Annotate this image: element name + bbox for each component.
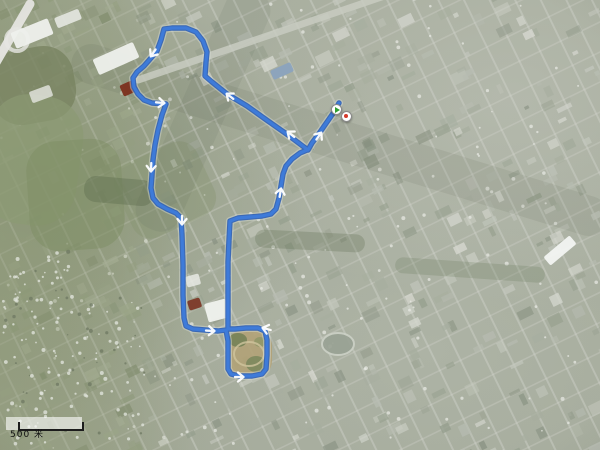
end-dot-icon (344, 114, 348, 118)
scale-bar: 500 米 (6, 416, 96, 446)
stadium (322, 333, 354, 355)
map-canvas[interactable]: 500 米 (0, 0, 600, 450)
route-start-marker[interactable] (331, 104, 342, 115)
scale-bar-label: 500 米 (10, 430, 44, 440)
play-icon (335, 107, 340, 113)
satellite-map-overlay (0, 0, 600, 450)
route-end-marker[interactable] (341, 111, 352, 122)
